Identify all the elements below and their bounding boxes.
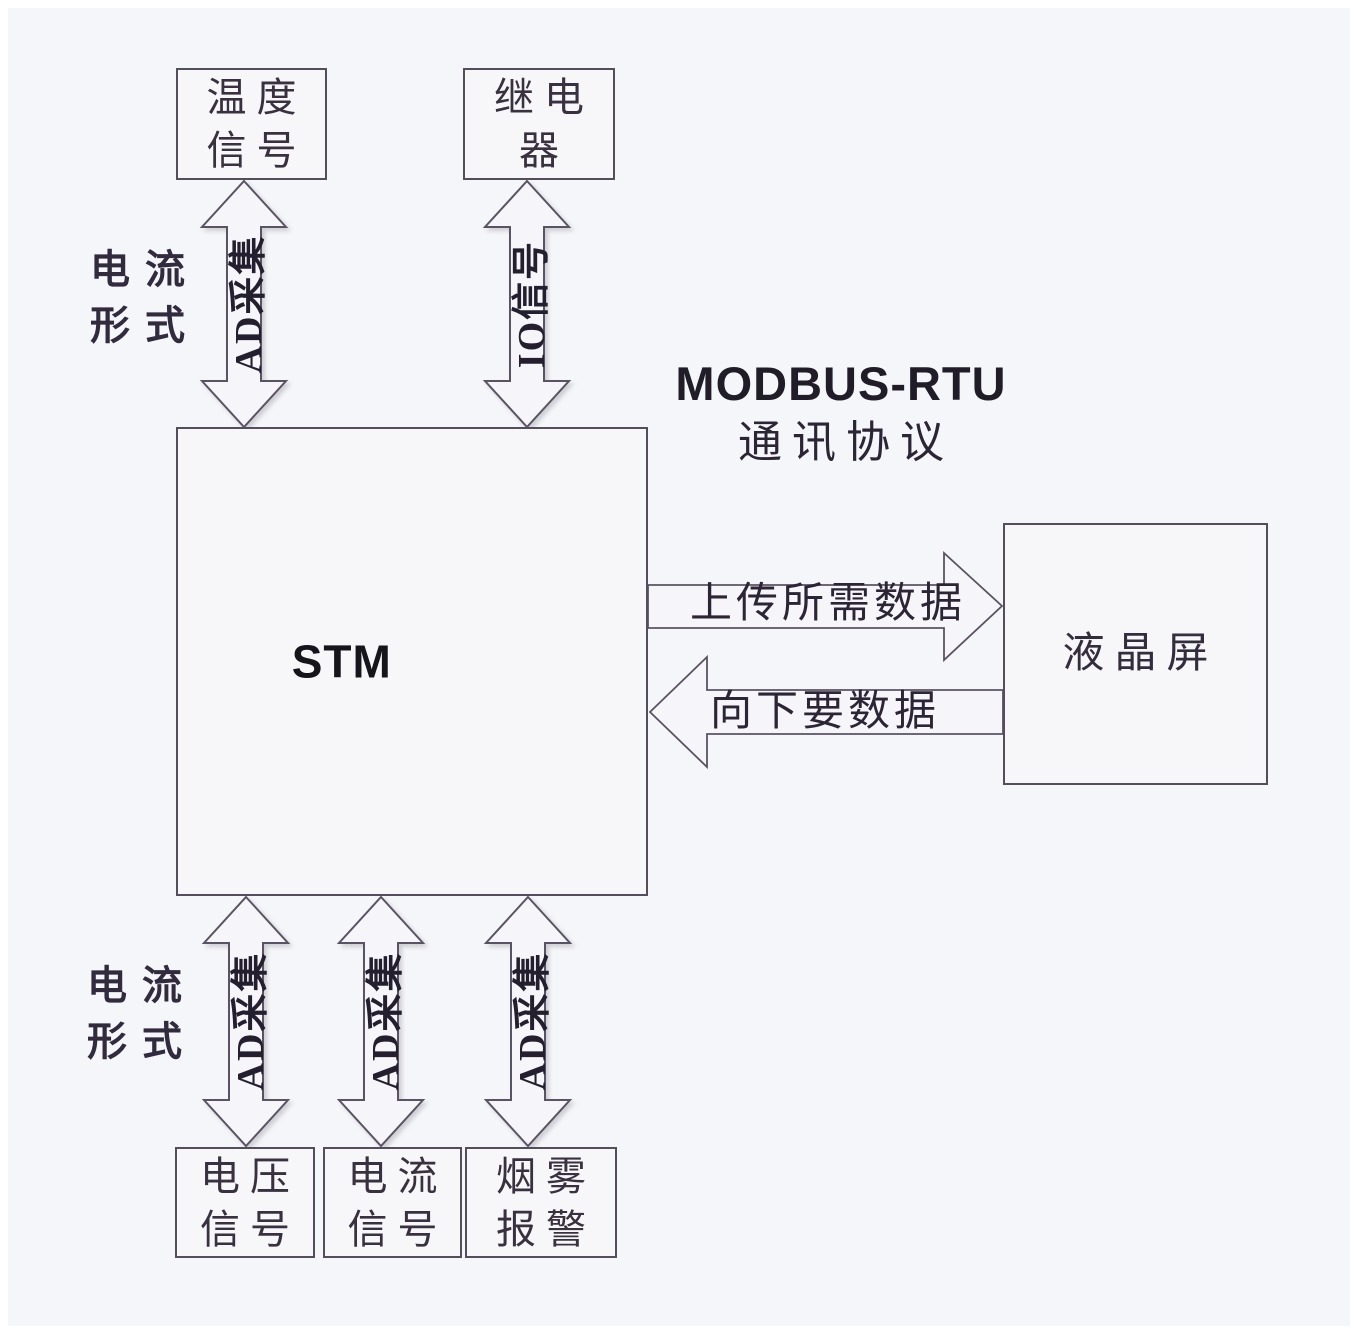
upload-data-label: 上传所需数据 bbox=[690, 579, 966, 629]
node-smoke-alarm: 烟雾 报警 bbox=[465, 1147, 617, 1258]
stm-label: STM bbox=[292, 635, 392, 688]
temperature-signal-label-line2: 信号 bbox=[207, 124, 307, 177]
ad-collect-temp-label: AD采集 bbox=[221, 204, 267, 404]
node-relay: 继电 器 bbox=[463, 68, 615, 180]
node-current-signal: 电流 信号 bbox=[323, 1147, 462, 1258]
relay-label-line2: 器 bbox=[519, 124, 569, 177]
smoke-alarm-label-line1: 烟雾 bbox=[496, 1150, 596, 1203]
lcd-screen-label: 液晶屏 bbox=[1062, 628, 1218, 681]
node-voltage-signal: 电压 信号 bbox=[175, 1147, 315, 1258]
temperature-signal-label-line1: 温度 bbox=[207, 71, 307, 124]
io-signal-label: IO信号 bbox=[504, 204, 550, 404]
modbus-protocol-line2: 通讯协议 bbox=[675, 416, 1016, 470]
node-temperature-signal: 温度 信号 bbox=[176, 68, 327, 180]
ad-collect-voltage-label: AD采集 bbox=[223, 921, 269, 1121]
voltage-signal-label-line2: 信号 bbox=[200, 1203, 300, 1256]
current-form-bottom-label: 电流 形式 bbox=[87, 958, 199, 1070]
node-lcd-screen: 液晶屏 bbox=[1003, 523, 1268, 785]
current-form-top-label: 电流 形式 bbox=[90, 242, 202, 354]
current-form-top-line2: 形式 bbox=[90, 298, 217, 354]
smoke-alarm-label-line2: 报警 bbox=[496, 1203, 596, 1256]
diagram-canvas: 温度 信号 继电 器 STM 液晶屏 电压 信号 电流 信号 烟雾 报警 AD采… bbox=[0, 0, 1358, 1334]
voltage-signal-label-line1: 电压 bbox=[200, 1150, 300, 1203]
modbus-protocol-line1: MODBUS-RTU bbox=[675, 358, 1006, 410]
current-form-bottom-line2: 形式 bbox=[87, 1014, 214, 1070]
ad-collect-current-label: AD采集 bbox=[358, 921, 404, 1121]
current-signal-label-line1: 电流 bbox=[348, 1150, 448, 1203]
modbus-protocol-label: MODBUS-RTU 通讯协议 bbox=[675, 358, 1006, 470]
node-stm: STM bbox=[176, 427, 648, 896]
current-signal-label-line2: 信号 bbox=[348, 1203, 448, 1256]
relay-label-line1: 继电 bbox=[494, 71, 594, 124]
request-data-label: 向下要数据 bbox=[710, 687, 940, 737]
current-form-top-line1: 电流 bbox=[90, 242, 217, 298]
current-form-bottom-line1: 电流 bbox=[87, 958, 214, 1014]
ad-collect-smoke-label: AD采集 bbox=[505, 921, 551, 1121]
